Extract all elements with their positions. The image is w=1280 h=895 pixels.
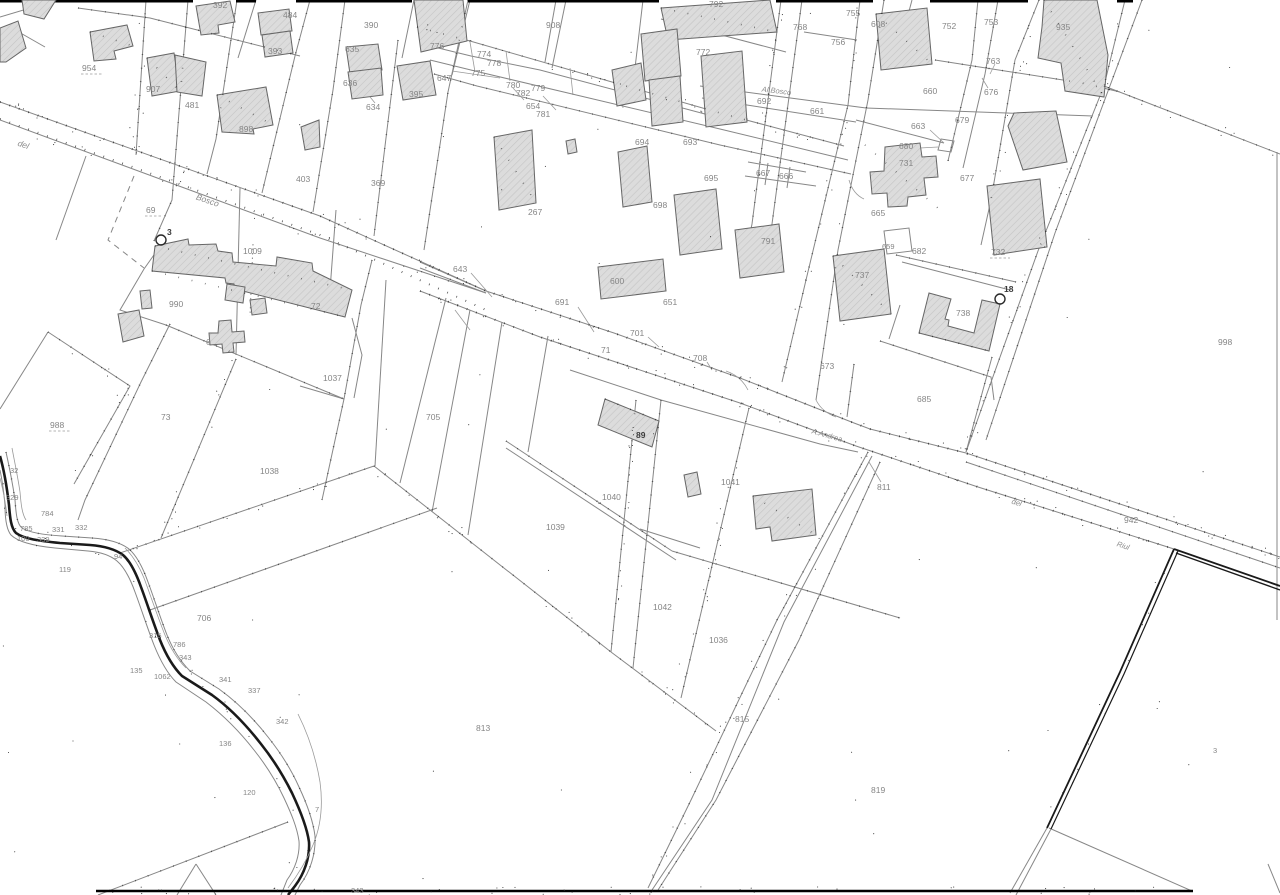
svg-text:676: 676 bbox=[984, 87, 998, 97]
svg-text:331: 331 bbox=[52, 525, 65, 534]
svg-text:768: 768 bbox=[793, 22, 807, 32]
svg-text:752: 752 bbox=[942, 21, 956, 31]
svg-text:7: 7 bbox=[315, 805, 319, 814]
svg-text:634: 634 bbox=[366, 102, 380, 112]
svg-text:395: 395 bbox=[409, 89, 423, 99]
svg-text:679: 679 bbox=[955, 115, 969, 125]
svg-text:988: 988 bbox=[50, 420, 64, 430]
svg-text:756: 756 bbox=[831, 37, 845, 47]
svg-text:782: 782 bbox=[516, 88, 530, 98]
svg-text:72: 72 bbox=[311, 301, 321, 311]
svg-text:708: 708 bbox=[693, 353, 707, 363]
svg-text:393: 393 bbox=[268, 46, 282, 56]
svg-text:990: 990 bbox=[169, 299, 183, 309]
svg-text:898: 898 bbox=[239, 124, 253, 134]
svg-text:753: 753 bbox=[984, 17, 998, 27]
svg-text:778: 778 bbox=[487, 58, 501, 68]
svg-text:1041: 1041 bbox=[721, 477, 740, 487]
svg-text:731: 731 bbox=[899, 158, 913, 168]
svg-text:369: 369 bbox=[371, 178, 385, 188]
svg-text:779: 779 bbox=[531, 83, 545, 93]
svg-text:732: 732 bbox=[991, 247, 1005, 257]
svg-text:608: 608 bbox=[871, 19, 885, 29]
svg-text:1040: 1040 bbox=[602, 492, 621, 502]
svg-text:775: 775 bbox=[471, 68, 485, 78]
svg-text:1009: 1009 bbox=[243, 246, 262, 256]
svg-text:94: 94 bbox=[114, 552, 122, 561]
svg-text:666: 666 bbox=[779, 171, 793, 181]
svg-text:1038: 1038 bbox=[260, 466, 279, 476]
svg-text:998: 998 bbox=[1218, 337, 1232, 347]
svg-text:792: 792 bbox=[709, 0, 723, 9]
svg-text:18: 18 bbox=[1004, 284, 1014, 294]
svg-text:815: 815 bbox=[735, 714, 749, 724]
svg-text:342: 342 bbox=[276, 717, 289, 726]
svg-text:267: 267 bbox=[528, 207, 542, 217]
svg-text:692: 692 bbox=[757, 96, 771, 106]
svg-text:392: 392 bbox=[213, 0, 227, 10]
svg-text:484: 484 bbox=[283, 10, 297, 20]
svg-text:706: 706 bbox=[197, 613, 211, 623]
svg-text:785: 785 bbox=[20, 524, 33, 533]
svg-text:1036: 1036 bbox=[709, 635, 728, 645]
svg-text:685: 685 bbox=[917, 394, 931, 404]
svg-text:119: 119 bbox=[59, 565, 71, 574]
svg-text:737: 737 bbox=[855, 270, 869, 280]
svg-text:693: 693 bbox=[683, 137, 697, 147]
svg-text:71: 71 bbox=[601, 345, 611, 355]
svg-text:390: 390 bbox=[364, 20, 378, 30]
svg-text:1037: 1037 bbox=[323, 373, 342, 383]
svg-text:6: 6 bbox=[206, 337, 211, 347]
svg-text:1062: 1062 bbox=[154, 672, 171, 681]
svg-text:661: 661 bbox=[810, 106, 824, 116]
svg-text:691: 691 bbox=[555, 297, 569, 307]
svg-text:32: 32 bbox=[10, 466, 18, 475]
svg-text:332: 332 bbox=[75, 523, 88, 532]
svg-text:89: 89 bbox=[636, 430, 646, 440]
svg-text:667: 667 bbox=[756, 168, 770, 178]
svg-text:1042: 1042 bbox=[653, 602, 672, 612]
svg-text:651: 651 bbox=[663, 297, 677, 307]
svg-text:636: 636 bbox=[343, 78, 357, 88]
svg-text:811: 811 bbox=[877, 482, 891, 492]
svg-text:120: 120 bbox=[243, 788, 256, 797]
svg-text:663: 663 bbox=[911, 121, 925, 131]
svg-text:343: 343 bbox=[351, 886, 364, 895]
svg-text:403: 403 bbox=[296, 174, 310, 184]
svg-text:786: 786 bbox=[173, 640, 186, 649]
svg-text:665: 665 bbox=[871, 208, 885, 218]
svg-text:100: 100 bbox=[17, 534, 30, 543]
svg-text:954: 954 bbox=[82, 63, 96, 73]
svg-text:772: 772 bbox=[696, 47, 710, 57]
svg-text:1039: 1039 bbox=[546, 522, 565, 532]
svg-text:776: 776 bbox=[430, 41, 444, 51]
svg-text:701: 701 bbox=[630, 328, 644, 338]
svg-text:698: 698 bbox=[653, 200, 667, 210]
svg-text:136: 136 bbox=[219, 739, 232, 748]
svg-text:738: 738 bbox=[956, 308, 970, 318]
svg-text:682: 682 bbox=[912, 246, 926, 256]
svg-text:329: 329 bbox=[6, 493, 19, 502]
svg-text:339: 339 bbox=[37, 535, 50, 544]
svg-text:907: 907 bbox=[146, 84, 160, 94]
svg-text:135: 135 bbox=[130, 666, 143, 675]
svg-text:481: 481 bbox=[185, 100, 199, 110]
svg-text:705: 705 bbox=[426, 412, 440, 422]
svg-text:343: 343 bbox=[179, 653, 192, 662]
svg-text:755: 755 bbox=[846, 8, 860, 18]
svg-text:341: 341 bbox=[219, 675, 232, 684]
svg-text:942: 942 bbox=[1124, 515, 1138, 525]
svg-text:660: 660 bbox=[923, 86, 937, 96]
svg-text:784: 784 bbox=[41, 509, 54, 518]
svg-text:763: 763 bbox=[986, 56, 1000, 66]
svg-text:647: 647 bbox=[437, 73, 451, 83]
svg-text:781: 781 bbox=[536, 109, 550, 119]
svg-text:694: 694 bbox=[635, 137, 649, 147]
svg-text:69: 69 bbox=[146, 205, 156, 215]
svg-text:315: 315 bbox=[149, 631, 162, 640]
svg-text:695: 695 bbox=[704, 173, 718, 183]
svg-text:337: 337 bbox=[248, 686, 261, 695]
svg-text:908: 908 bbox=[546, 20, 560, 30]
svg-text:791: 791 bbox=[761, 236, 775, 246]
svg-text:819: 819 bbox=[871, 785, 885, 795]
svg-text:3: 3 bbox=[1213, 746, 1217, 755]
svg-text:643: 643 bbox=[453, 264, 467, 274]
svg-text:600: 600 bbox=[610, 276, 624, 286]
svg-text:635: 635 bbox=[345, 44, 359, 54]
svg-text:673: 673 bbox=[820, 361, 834, 371]
svg-text:3: 3 bbox=[167, 227, 172, 237]
svg-text:659: 659 bbox=[882, 242, 895, 251]
svg-text:813: 813 bbox=[476, 723, 490, 733]
svg-text:677: 677 bbox=[960, 173, 974, 183]
svg-text:73: 73 bbox=[161, 412, 171, 422]
svg-text:680: 680 bbox=[899, 141, 913, 151]
